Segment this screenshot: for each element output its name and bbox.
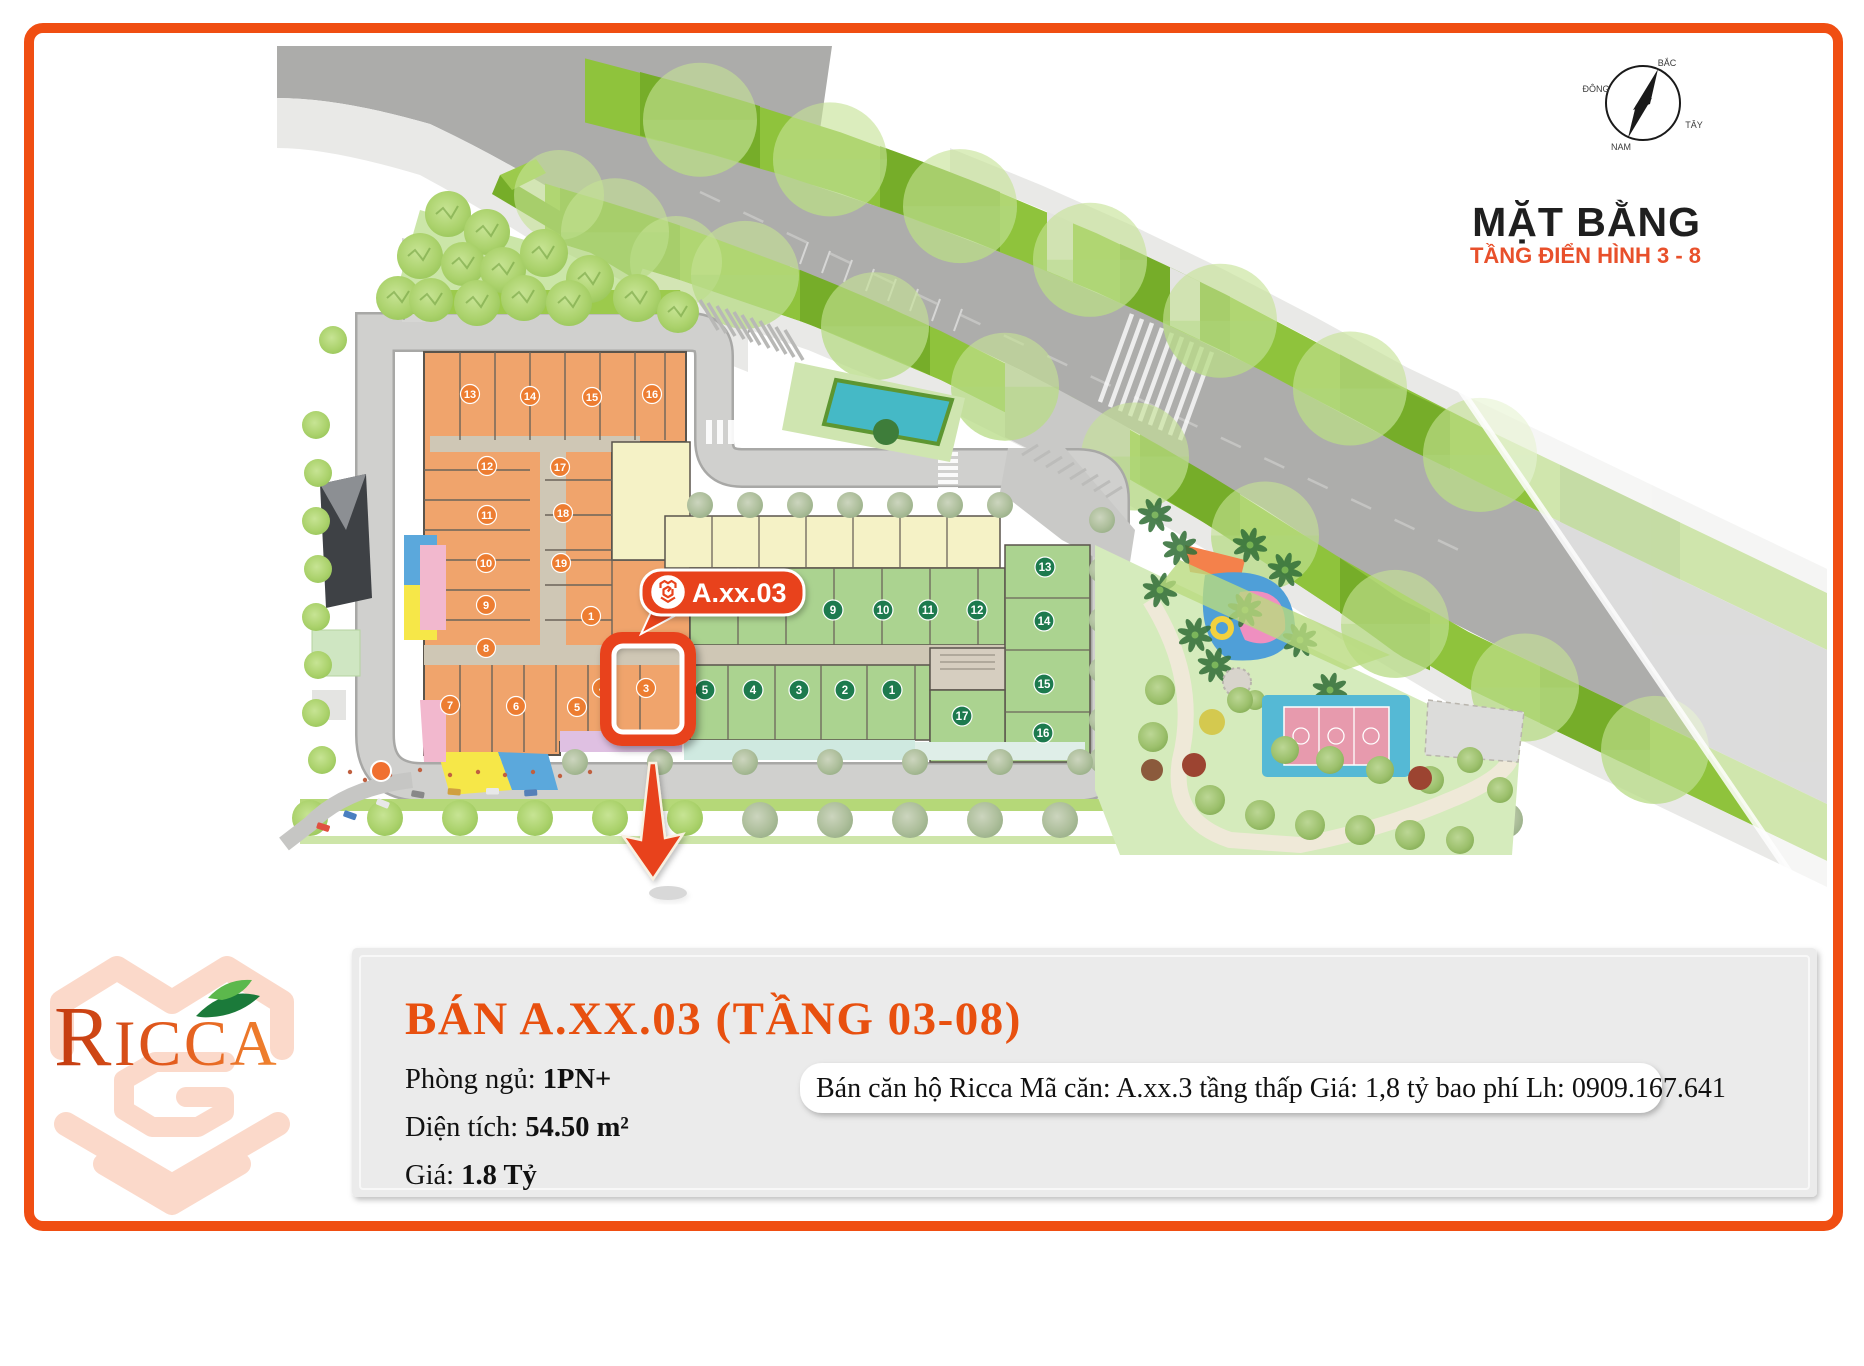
svg-text:Diện tích: 54.50 m²: Diện tích: 54.50 m²: [405, 1112, 629, 1143]
svg-text:15: 15: [1038, 679, 1051, 691]
svg-text:5: 5: [702, 685, 709, 697]
svg-text:15: 15: [586, 392, 598, 404]
svg-text:NAM: NAM: [1611, 142, 1631, 152]
svg-text:MẶT BẰNG: MẶT BẰNG: [1472, 199, 1701, 245]
svg-text:3: 3: [796, 685, 802, 697]
svg-text:9: 9: [483, 600, 489, 612]
svg-text:1: 1: [889, 685, 896, 697]
svg-text:12: 12: [481, 461, 493, 473]
svg-text:5: 5: [574, 702, 580, 714]
svg-text:8: 8: [483, 643, 489, 655]
svg-text:18: 18: [557, 508, 569, 520]
svg-text:Phòng ngủ: 1PN+: Phòng ngủ: 1PN+: [405, 1064, 611, 1095]
svg-text:6: 6: [513, 701, 519, 713]
svg-text:7: 7: [447, 700, 453, 712]
svg-text:13: 13: [464, 389, 476, 401]
svg-text:BÁN A.XX.03 (TẦNG 03-08): BÁN A.XX.03 (TẦNG 03-08): [405, 992, 1022, 1045]
svg-text:9: 9: [830, 605, 836, 617]
svg-text:TÂY: TÂY: [1685, 120, 1703, 130]
svg-text:12: 12: [971, 605, 984, 617]
svg-text:11: 11: [481, 510, 493, 522]
svg-text:14: 14: [1038, 616, 1051, 628]
svg-text:10: 10: [480, 558, 492, 570]
svg-text:TẦNG ĐIỂN HÌNH 3 - 8: TẦNG ĐIỂN HÌNH 3 - 8: [1470, 243, 1701, 268]
svg-text:1: 1: [588, 611, 594, 623]
svg-text:16: 16: [1037, 728, 1050, 740]
svg-text:3: 3: [643, 683, 649, 695]
svg-text:4: 4: [750, 685, 757, 697]
svg-text:A.xx.03: A.xx.03: [692, 578, 787, 608]
svg-text:2: 2: [842, 685, 848, 697]
svg-text:11: 11: [922, 605, 935, 617]
svg-text:13: 13: [1039, 562, 1052, 574]
svg-text:Giá: 1.8 Tỷ: Giá: 1.8 Tỷ: [405, 1160, 537, 1191]
svg-text:16: 16: [646, 389, 658, 401]
svg-text:ĐÔNG: ĐÔNG: [1583, 84, 1610, 94]
svg-text:10: 10: [877, 605, 890, 617]
svg-text:14: 14: [524, 391, 537, 403]
svg-text:19: 19: [555, 558, 567, 570]
svg-text:17: 17: [956, 711, 969, 723]
svg-text:Bán căn hộ Ricca Mã căn: A.xx.: Bán căn hộ Ricca Mã căn: A.xx.3 tầng thấ…: [816, 1073, 1726, 1104]
svg-text:BẮC: BẮC: [1658, 58, 1677, 68]
svg-text:17: 17: [554, 462, 566, 474]
